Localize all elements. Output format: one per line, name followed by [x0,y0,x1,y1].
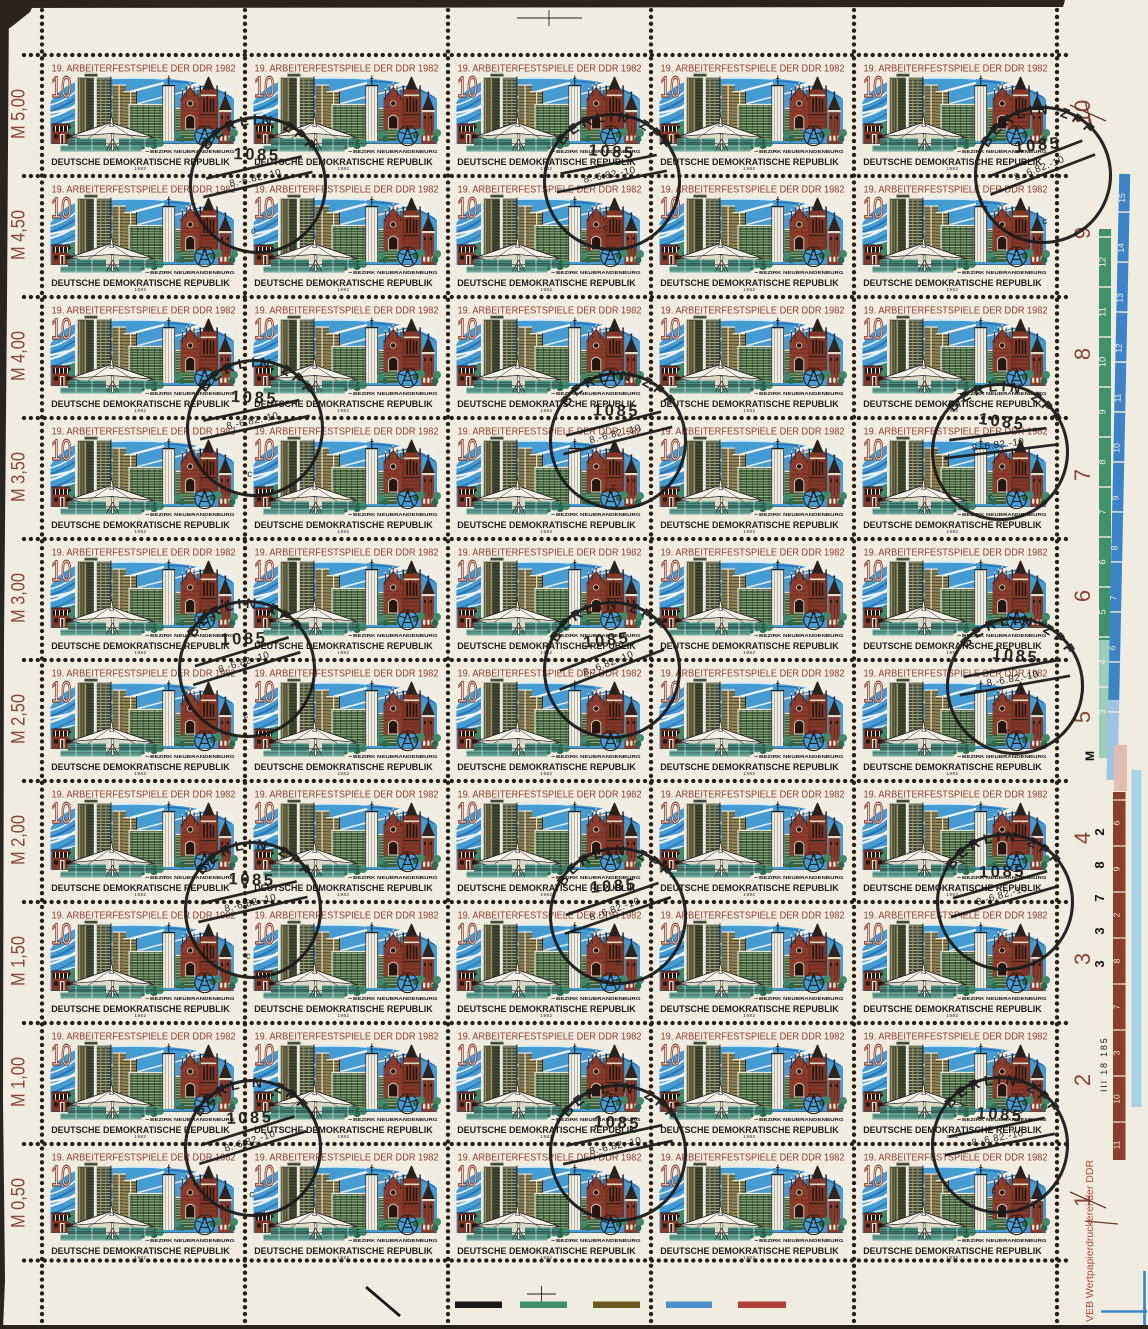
svg-text:M 1,50: M 1,50 [9,936,30,986]
svg-text:8: 8 [1109,545,1119,550]
svg-text:3: 3 [1092,927,1107,934]
svg-text:11: 11 [1112,393,1122,402]
svg-text:7: 7 [1092,894,1107,901]
svg-text:8: 8 [1070,348,1095,360]
svg-text:3: 3 [1112,1050,1122,1055]
svg-text:2: 2 [1112,912,1122,917]
svg-text:8: 8 [1098,459,1109,464]
svg-text:15: 15 [1117,193,1127,203]
svg-text:7: 7 [1112,1004,1122,1009]
svg-text:M 1,00: M 1,00 [9,1057,30,1107]
svg-text:6: 6 [1107,645,1117,650]
svg-text:VEB Wertpapierdruckerei der DD: VEB Wertpapierdruckerei der DDR [1084,1160,1096,1322]
svg-text:9: 9 [1098,409,1109,414]
svg-text:6: 6 [1098,559,1109,564]
svg-text:M 4,00: M 4,00 [9,331,30,381]
svg-text:7: 7 [1098,509,1109,514]
svg-text:11: 11 [1112,1140,1122,1149]
svg-text:M 2,00: M 2,00 [9,815,30,865]
svg-text:9: 9 [1112,866,1122,871]
svg-text:6: 6 [1070,590,1095,602]
svg-text:7: 7 [1108,595,1118,600]
svg-text:6: 6 [1112,820,1122,825]
svg-text:III 18 185: III 18 185 [1099,1036,1109,1092]
svg-text:14: 14 [1116,243,1126,253]
svg-text:M 2,50: M 2,50 [9,694,30,744]
svg-text:2: 2 [1092,828,1107,835]
svg-text:7: 7 [1070,469,1095,481]
svg-text:9: 9 [1110,495,1120,500]
svg-text:M 5,00: M 5,00 [9,89,30,139]
svg-text:M 4,50: M 4,50 [9,210,30,260]
svg-text:3: 3 [1098,709,1109,714]
svg-text:10: 10 [1111,443,1121,453]
svg-text:11: 11 [1098,307,1109,317]
svg-text:12: 12 [1113,343,1123,353]
svg-text:8: 8 [1092,861,1107,868]
svg-text:2: 2 [1070,1074,1095,1086]
svg-text:M 0,50: M 0,50 [9,1178,30,1228]
svg-text:10: 10 [1112,1094,1122,1104]
svg-text:M: M [1083,751,1097,761]
svg-text:13: 13 [1115,293,1125,303]
svg-text:8: 8 [1112,958,1122,963]
svg-text:4: 4 [1098,659,1109,664]
svg-text:12: 12 [1098,257,1109,268]
svg-text:5: 5 [1098,609,1109,614]
svg-text:3: 3 [1092,960,1107,967]
svg-text:M 3,50: M 3,50 [9,452,30,502]
svg-text:10: 10 [1098,357,1109,368]
svg-text:M 3,00: M 3,00 [9,573,30,623]
